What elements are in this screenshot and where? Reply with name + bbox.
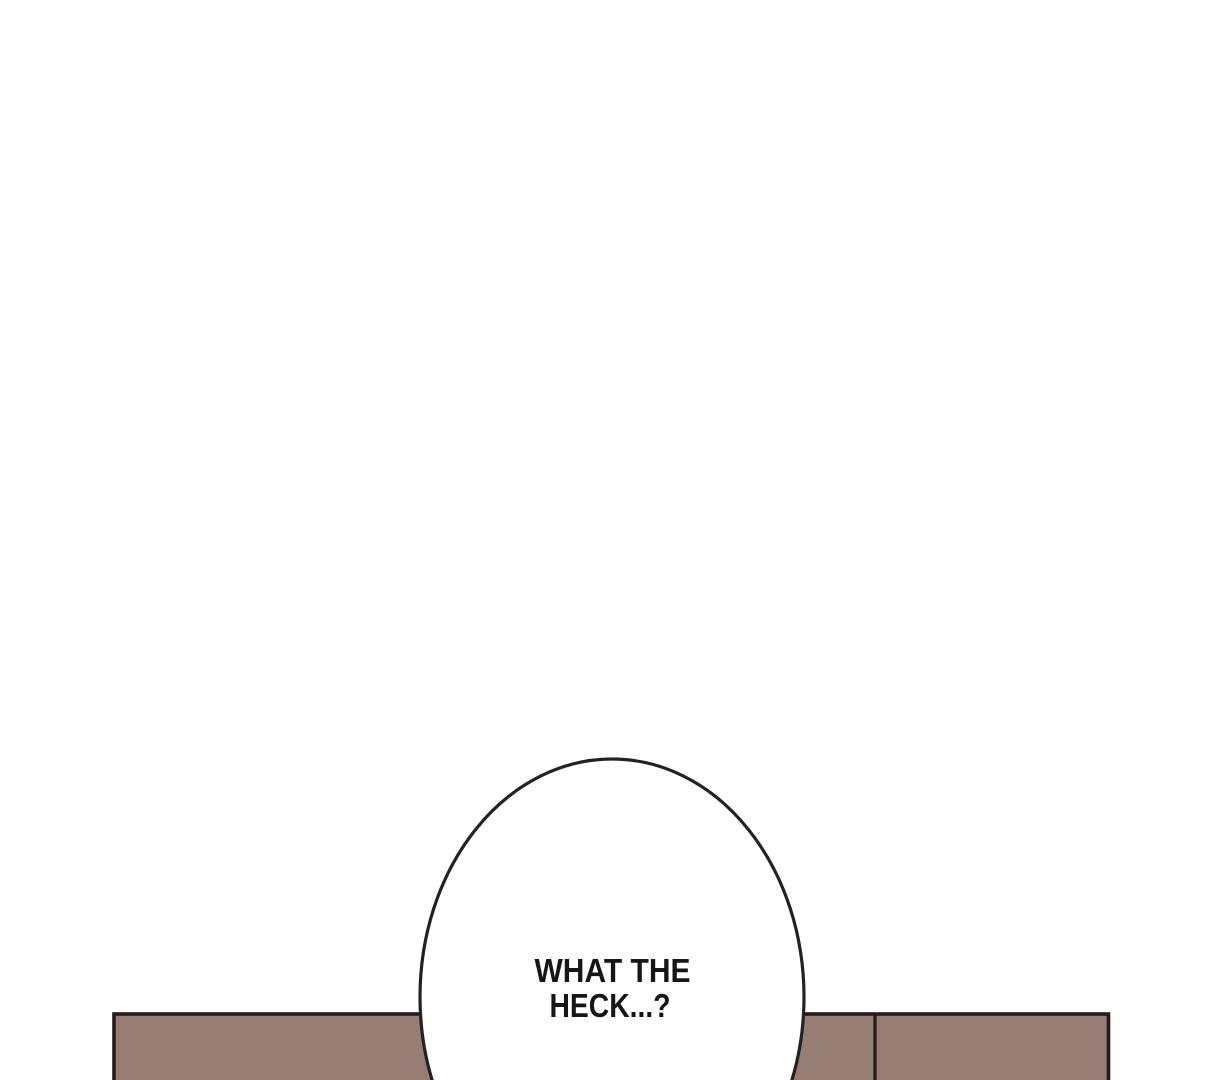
svg-text:WHAT THE: WHAT THE — [535, 952, 691, 989]
svg-text:HECK...?: HECK...? — [550, 987, 671, 1024]
